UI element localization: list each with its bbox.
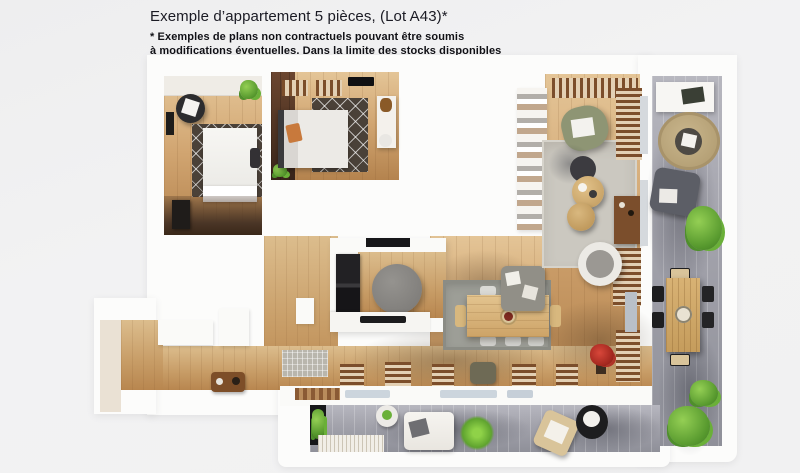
- dining-chair: [505, 336, 521, 346]
- bedroom-1-plant-icon: [240, 80, 258, 99]
- sofa-pillow: [505, 271, 521, 286]
- cabinet-item: [681, 87, 705, 105]
- bedroom-2-wall-hangers-left: [282, 80, 308, 96]
- outdoor-chair-black: [702, 312, 714, 328]
- balcony-cabinet: [656, 82, 714, 112]
- living-shutter-top: [616, 88, 642, 160]
- window-glass: [440, 390, 497, 398]
- daybed-pillow: [408, 418, 429, 438]
- bedroom-2-floor: [271, 72, 399, 180]
- bedroom-1-shelf: [166, 112, 174, 135]
- kitchen-round-table: [372, 264, 422, 314]
- bottom-window-wall: [280, 386, 655, 406]
- armchair-throw: [571, 117, 595, 138]
- hanging-chair-cushion: [544, 420, 570, 445]
- terrace-daybed: [404, 412, 454, 450]
- bedroom-2-stool: [379, 134, 392, 147]
- round-chair-cushion: [586, 250, 614, 278]
- bedroom-1-bag: [250, 148, 260, 168]
- window-louver: [512, 364, 536, 386]
- kitchen-hood: [366, 238, 410, 247]
- terrace-side-table: [376, 405, 398, 427]
- window-louver: [432, 364, 454, 386]
- fringe-rug: [318, 435, 384, 452]
- balcony-round-rug: [658, 112, 720, 170]
- corridor-closet-2: [219, 308, 249, 346]
- corridor-closet-1: [158, 320, 213, 345]
- kitchen-appliance-column: [336, 254, 360, 318]
- console-item: [216, 378, 223, 385]
- balcony-chair-cushion: [681, 133, 697, 149]
- lounge-cushion: [659, 189, 677, 204]
- red-flowers-icon: [590, 344, 614, 366]
- outdoor-chair-black: [702, 286, 714, 302]
- table-plant-icon: [382, 410, 392, 420]
- terrace-plant-icon: [668, 406, 710, 446]
- table-bowl: [578, 183, 587, 192]
- bedroom-1-bed: [203, 128, 257, 186]
- right-terrace-deck: [652, 76, 722, 446]
- dining-sofa: [501, 266, 545, 311]
- window-louver: [556, 364, 578, 386]
- corner-window-glass: [625, 292, 637, 332]
- window-glass: [345, 390, 390, 398]
- dining-centerpiece-red: [504, 312, 513, 321]
- black-chair-cushion: [583, 411, 600, 427]
- bedroom-1-floor: [164, 76, 262, 235]
- bedroom-1-bassinet: [176, 94, 205, 123]
- outdoor-centerpiece: [675, 306, 692, 323]
- terrace-hanging-chair: [532, 408, 580, 457]
- dining-end-chair: [550, 305, 561, 327]
- kitchen-hob: [360, 316, 406, 323]
- console-item: [232, 377, 240, 385]
- living-coffee-table-2: [567, 203, 595, 231]
- living-round-chair: [578, 242, 622, 286]
- bedroom-2-wall-hangers-right: [316, 80, 342, 96]
- corridor-rug: [282, 350, 328, 377]
- outdoor-chair-black: [652, 312, 664, 328]
- bottom-terrace-deck: [310, 405, 660, 452]
- side-table-item: [619, 202, 625, 208]
- terrace-black-chair: [576, 405, 608, 439]
- sofa-pillow: [522, 284, 539, 300]
- outdoor-end-chair: [670, 354, 690, 366]
- terrace-starburst-plant-icon: [460, 416, 494, 450]
- window-louver: [340, 364, 364, 386]
- balcony-door-glass: [640, 180, 648, 246]
- living-shutter-bottom: [616, 330, 640, 382]
- living-side-table: [614, 196, 640, 244]
- entry-floor: [121, 320, 163, 390]
- dining-chair: [480, 336, 496, 346]
- bedroom-2-dog: [380, 98, 392, 112]
- terrace-plant-icon: [690, 380, 718, 406]
- bedroom-1-dresser: [172, 200, 190, 229]
- outdoor-chair-black: [652, 286, 664, 302]
- dining-chair: [528, 336, 544, 346]
- window-glass: [507, 390, 533, 398]
- dining-end-chair: [455, 305, 466, 327]
- terrace-plant-icon: [686, 206, 722, 250]
- window-louver: [385, 362, 411, 386]
- corridor-console: [211, 372, 245, 392]
- outdoor-dining-table: [666, 278, 700, 352]
- kitchen-counter: [330, 312, 430, 332]
- bedroom-2-tv: [348, 77, 374, 86]
- table-bowl-dark: [589, 190, 597, 198]
- kitchen-block: [330, 238, 446, 332]
- side-table-item: [628, 210, 634, 216]
- threshold-wood: [295, 388, 340, 400]
- entry-side-wall: [100, 320, 121, 412]
- vestibule-column: [296, 298, 314, 324]
- bassinet-blanket: [181, 98, 200, 117]
- balcony-door-glass: [640, 96, 648, 154]
- planter-basket: [470, 362, 496, 384]
- floor-plan: [0, 0, 800, 473]
